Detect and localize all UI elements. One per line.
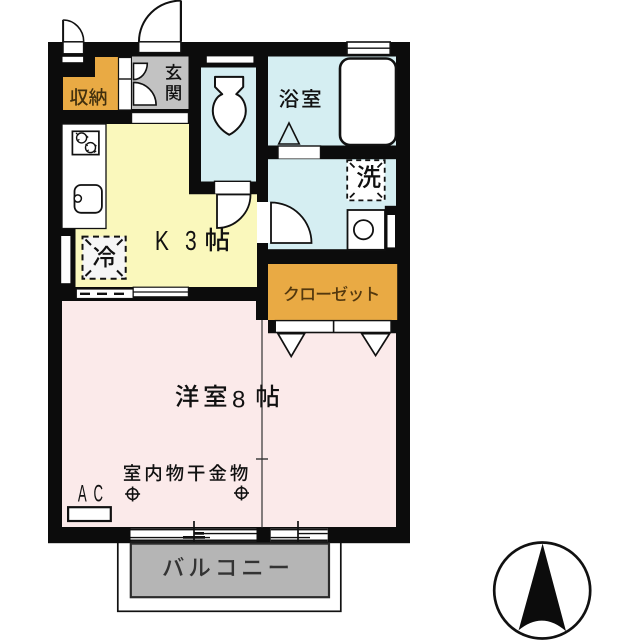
svg-text:K: K: [155, 226, 169, 257]
svg-text:8: 8: [232, 386, 245, 413]
svg-text:3: 3: [185, 226, 197, 257]
svg-text:A: A: [78, 480, 87, 507]
svg-text:C: C: [94, 480, 104, 507]
